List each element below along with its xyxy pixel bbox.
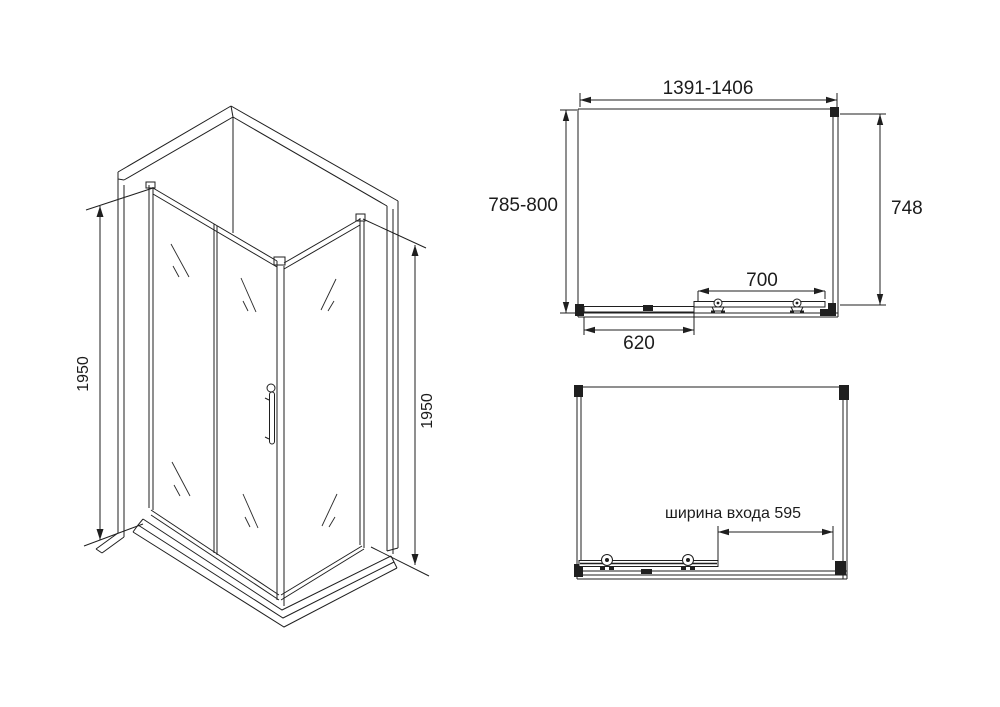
dimension-plan-fixed-panel: 620 [584,313,694,354]
dimension-plan-width: 1391-1406 [580,78,837,107]
enclosure-frame [133,182,397,627]
dimension-plan-door-width: 700 [698,270,825,301]
door-handle [265,384,275,444]
plan-view: 1391-1406 785-800 748 700 [488,78,922,354]
dimension-plan-depth: 785-800 [488,110,577,313]
glass-reflection-marks [171,244,337,528]
plan-width-label: 1391-1406 [663,78,754,99]
height-left-label: 1950 [75,356,92,392]
front-outline [574,385,849,579]
dimension-front-entrance: ширина входа 595 [665,505,833,560]
plan-depth-label: 785-800 [488,195,558,216]
drawing-svg: 1950 1950 [0,0,1000,707]
front-view: ширина входа 595 [574,385,849,579]
height-right-label: 1950 [419,393,436,429]
plan-fixed-panel-label: 620 [623,333,655,354]
plan-door-width-label: 700 [746,270,778,291]
dimension-height-left: 1950 [75,188,153,546]
dimension-plan-side-depth: 748 [840,114,923,305]
roller-icon [600,555,614,571]
technical-drawing-sheet: 1950 1950 [0,0,1000,707]
roller-icon [681,555,695,571]
plan-outline [578,107,839,317]
wall-panels [96,106,398,554]
dimension-height-right: 1950 [363,219,436,576]
front-entrance-label: ширина входа 595 [665,505,801,522]
plan-side-depth-label: 748 [891,198,923,219]
isometric-view: 1950 1950 [75,106,436,627]
